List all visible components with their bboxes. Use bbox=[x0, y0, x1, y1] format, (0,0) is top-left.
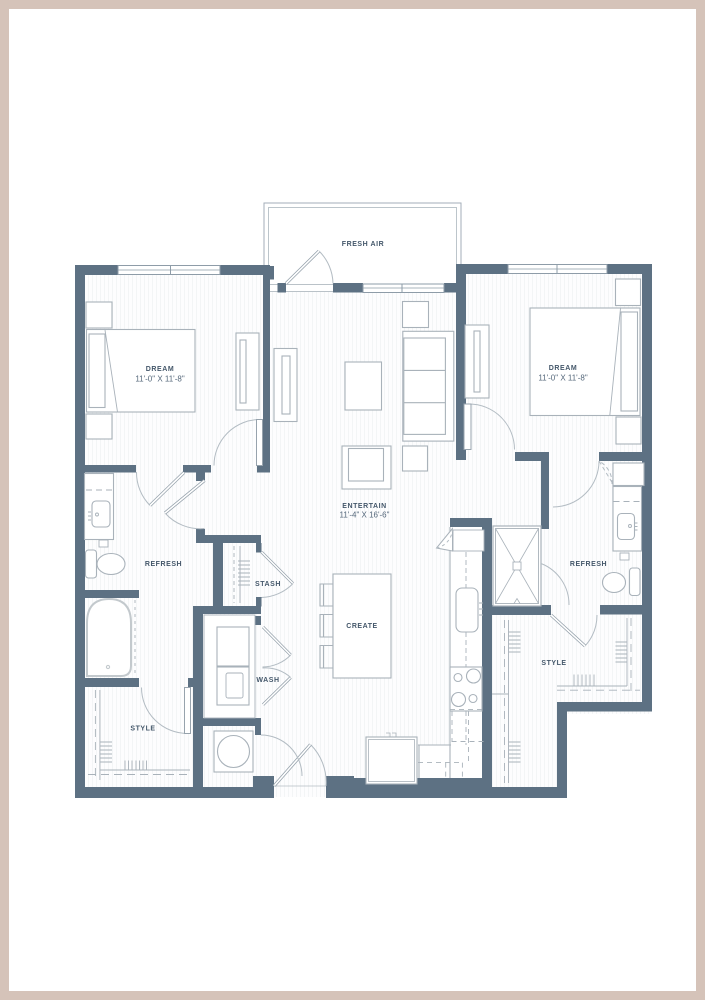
svg-text:REFRESH: REFRESH bbox=[570, 561, 607, 568]
svg-text:DREAM: DREAM bbox=[549, 365, 577, 372]
svg-text:STYLE: STYLE bbox=[130, 726, 155, 733]
svg-text:FRESH AIR: FRESH AIR bbox=[342, 241, 384, 248]
svg-text:ENTERTAIN: ENTERTAIN bbox=[342, 503, 387, 510]
svg-text:DREAM: DREAM bbox=[146, 366, 174, 373]
svg-text:11'-0" X 11'-8": 11'-0" X 11'-8" bbox=[135, 375, 185, 384]
svg-text:STASH: STASH bbox=[255, 581, 281, 588]
svg-text:11'-0" X 11'-8": 11'-0" X 11'-8" bbox=[538, 374, 588, 383]
svg-text:CREATE: CREATE bbox=[346, 623, 378, 630]
svg-text:11'-4" X 16'-6": 11'-4" X 16'-6" bbox=[340, 511, 390, 520]
svg-text:WASH: WASH bbox=[256, 677, 279, 684]
svg-text:STYLE: STYLE bbox=[541, 660, 566, 667]
svg-text:REFRESH: REFRESH bbox=[145, 561, 182, 568]
